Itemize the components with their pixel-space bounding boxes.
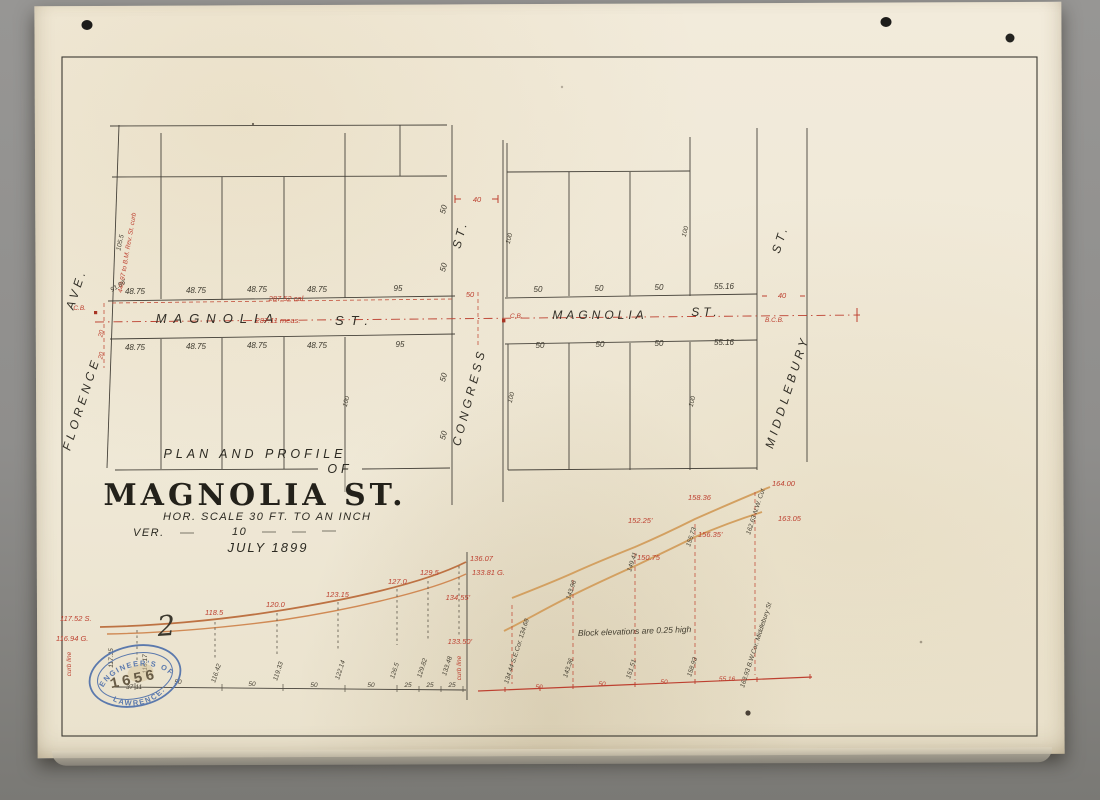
lot-depth: 100	[507, 391, 517, 404]
street-label-florence: FLORENCE	[59, 355, 102, 452]
profile-grade: 150.75	[637, 553, 661, 562]
profile-station-elev: 158.93	[686, 656, 699, 677]
profile-station-elev: 143.96	[565, 579, 578, 600]
lot-width: 48.75	[125, 343, 146, 352]
profile-grade: 129.5	[420, 568, 440, 577]
profile-grade: 123.15	[326, 590, 350, 599]
lot-depth: 100	[681, 225, 691, 238]
lot-width: 48.75	[247, 285, 268, 294]
lot-depth: 100	[342, 395, 352, 408]
title-vertical-scale-label: VER.	[133, 527, 165, 539]
lot-width: 55.16	[714, 282, 735, 291]
figure-2-mark: 2	[155, 609, 176, 643]
station-spacing: 55.16	[719, 676, 736, 683]
street-label-middlebury: MIDDLEBURY	[762, 333, 812, 450]
profile-station-elev: 129.82	[416, 657, 429, 678]
lot-width: 50	[536, 341, 545, 350]
erasure-dashes	[180, 531, 336, 533]
profile-station-elev: 151.51	[625, 658, 638, 679]
profile-elev: 133.81 G.	[472, 568, 505, 577]
lot-width: 48.75	[307, 285, 328, 294]
profile-grade: 158.36	[688, 493, 712, 502]
corner-elevation-note: 134.44 S.E.Cor. 134.68	[503, 618, 531, 685]
profile-station-elev: 119.33	[272, 661, 285, 682]
plan-and-profile-drawing: MAGNOLIA ST. MAGNOLIA ST. AVE. FLORENCE …	[0, 0, 1100, 800]
street-width: 40	[778, 291, 787, 300]
city-engineers-office-stamp: CITY ENGINEER'S OFFICE LAWRENCE. 1656	[84, 637, 187, 716]
street-label-congress: CONGRESS	[449, 347, 489, 448]
street-label-middlebury-st: ST.	[769, 223, 791, 255]
catch-basin-label: C.B.	[73, 305, 86, 312]
profile-grade: 156.35'	[698, 530, 723, 539]
street-label-magnolia-east: MAGNOLIA	[552, 308, 647, 322]
street-width: 40	[473, 195, 482, 204]
lot-width: 50	[438, 261, 449, 272]
profile-elev: 133.50'	[448, 637, 473, 646]
profile-grade: 163.05	[778, 514, 802, 523]
sheet-border	[62, 57, 1037, 736]
profile-elev: 134.55'	[446, 593, 471, 602]
lot-width: 48.75	[307, 341, 328, 350]
street-label-congress-st: ST.	[450, 218, 471, 250]
lot-width: 48.75	[186, 342, 207, 351]
half-width: 20	[97, 351, 106, 361]
profile-grade: 127.0	[388, 577, 408, 586]
title-street-name: MAGNOLIA ST.	[103, 478, 406, 513]
plan-red-marks	[94, 195, 860, 368]
station-spacing: 25	[425, 682, 434, 689]
lot-width: 50	[438, 371, 449, 382]
title-line2: OF	[327, 462, 352, 476]
street-label-magnolia-east-st: ST.	[691, 305, 721, 319]
lot-width: 50	[595, 284, 604, 293]
station-spacing: 50	[598, 681, 606, 688]
title-block: PLAN AND PROFILE OF MAGNOLIA ST. HOR. SC…	[103, 447, 406, 555]
block-elevation-note: Block elevations are 0.25 high	[578, 624, 692, 638]
title-horizontal-scale: HOR. SCALE 30 FT. TO AN INCH	[163, 511, 371, 523]
profile-station-elev: 133.48	[441, 655, 454, 676]
middlebury-corner-note: 163.93 B.W.Cor. Middlebury St	[739, 601, 774, 689]
calc-distance: 287.52 cal.	[268, 294, 306, 303]
street-label-magnolia-west-st: ST.	[335, 313, 375, 328]
measured-distance: 287.11 meas.	[255, 316, 301, 325]
lot-width: 48.75	[125, 287, 146, 296]
station-spacing: 25	[447, 682, 456, 689]
lot-depth: 100	[505, 232, 515, 245]
scanned-plan-sheet: MAGNOLIA ST. MAGNOLIA ST. AVE. FLORENCE …	[0, 0, 1100, 800]
curb-line-note: curb line	[456, 655, 463, 680]
lot-width: 95	[394, 284, 403, 293]
lot-width: 55.16	[714, 338, 735, 347]
station-spacing: 50	[367, 682, 375, 689]
title-date: JULY 1899	[227, 540, 309, 555]
profile-station-elev: 122.14	[334, 659, 347, 680]
lot-width: 50	[655, 339, 664, 348]
profile-east: 134.55' 133.50' 134.44 S.E.Cor. 134.68 1…	[446, 479, 812, 692]
lot-width: 50	[655, 283, 664, 292]
station-spacing: 50	[310, 682, 318, 689]
half-width: 20	[97, 329, 106, 339]
lot-width: 50	[438, 203, 449, 214]
profile-station-elev: 126.5	[389, 662, 401, 680]
catch-basin-label: C.B.	[510, 313, 523, 320]
profile-elev: 136.07	[470, 554, 494, 563]
lot-width: 50	[534, 285, 543, 294]
lot-width: 48.75	[186, 286, 207, 295]
profile-station-elev: 116.42	[210, 663, 223, 684]
station-spacing: 50	[248, 681, 256, 688]
profile-grade: 164.00	[772, 479, 796, 488]
station-spacing: 25	[403, 682, 412, 689]
station-spacing: 50	[535, 684, 543, 691]
profile-grade: 152.25'	[628, 516, 653, 525]
plan-labels: MAGNOLIA ST. MAGNOLIA ST. AVE. FLORENCE …	[59, 195, 812, 452]
title-vertical-scale-value: 10	[232, 526, 247, 538]
profile-elev: 117.52 S.	[60, 614, 92, 623]
title-line1: PLAN AND PROFILE	[163, 447, 346, 461]
fifty-mark: 50	[466, 290, 475, 299]
curb-line-note: curb line	[66, 651, 73, 676]
lot-depth: 100	[688, 395, 698, 408]
profile-elev: 116.94 G.	[56, 634, 88, 643]
profile-grade: 118.5	[205, 608, 224, 617]
lot-width: 50	[438, 429, 449, 440]
station-spacing: 50	[660, 679, 668, 686]
lot-width: 48.75	[247, 341, 268, 350]
profile-grade: 120.0	[266, 600, 286, 609]
lot-width: 50	[596, 340, 605, 349]
nw-cut-note: 162.63 N.W. Cut	[745, 487, 767, 536]
catch-basin-label: B.C.B.	[765, 317, 784, 324]
lot-width: 95	[396, 340, 405, 349]
